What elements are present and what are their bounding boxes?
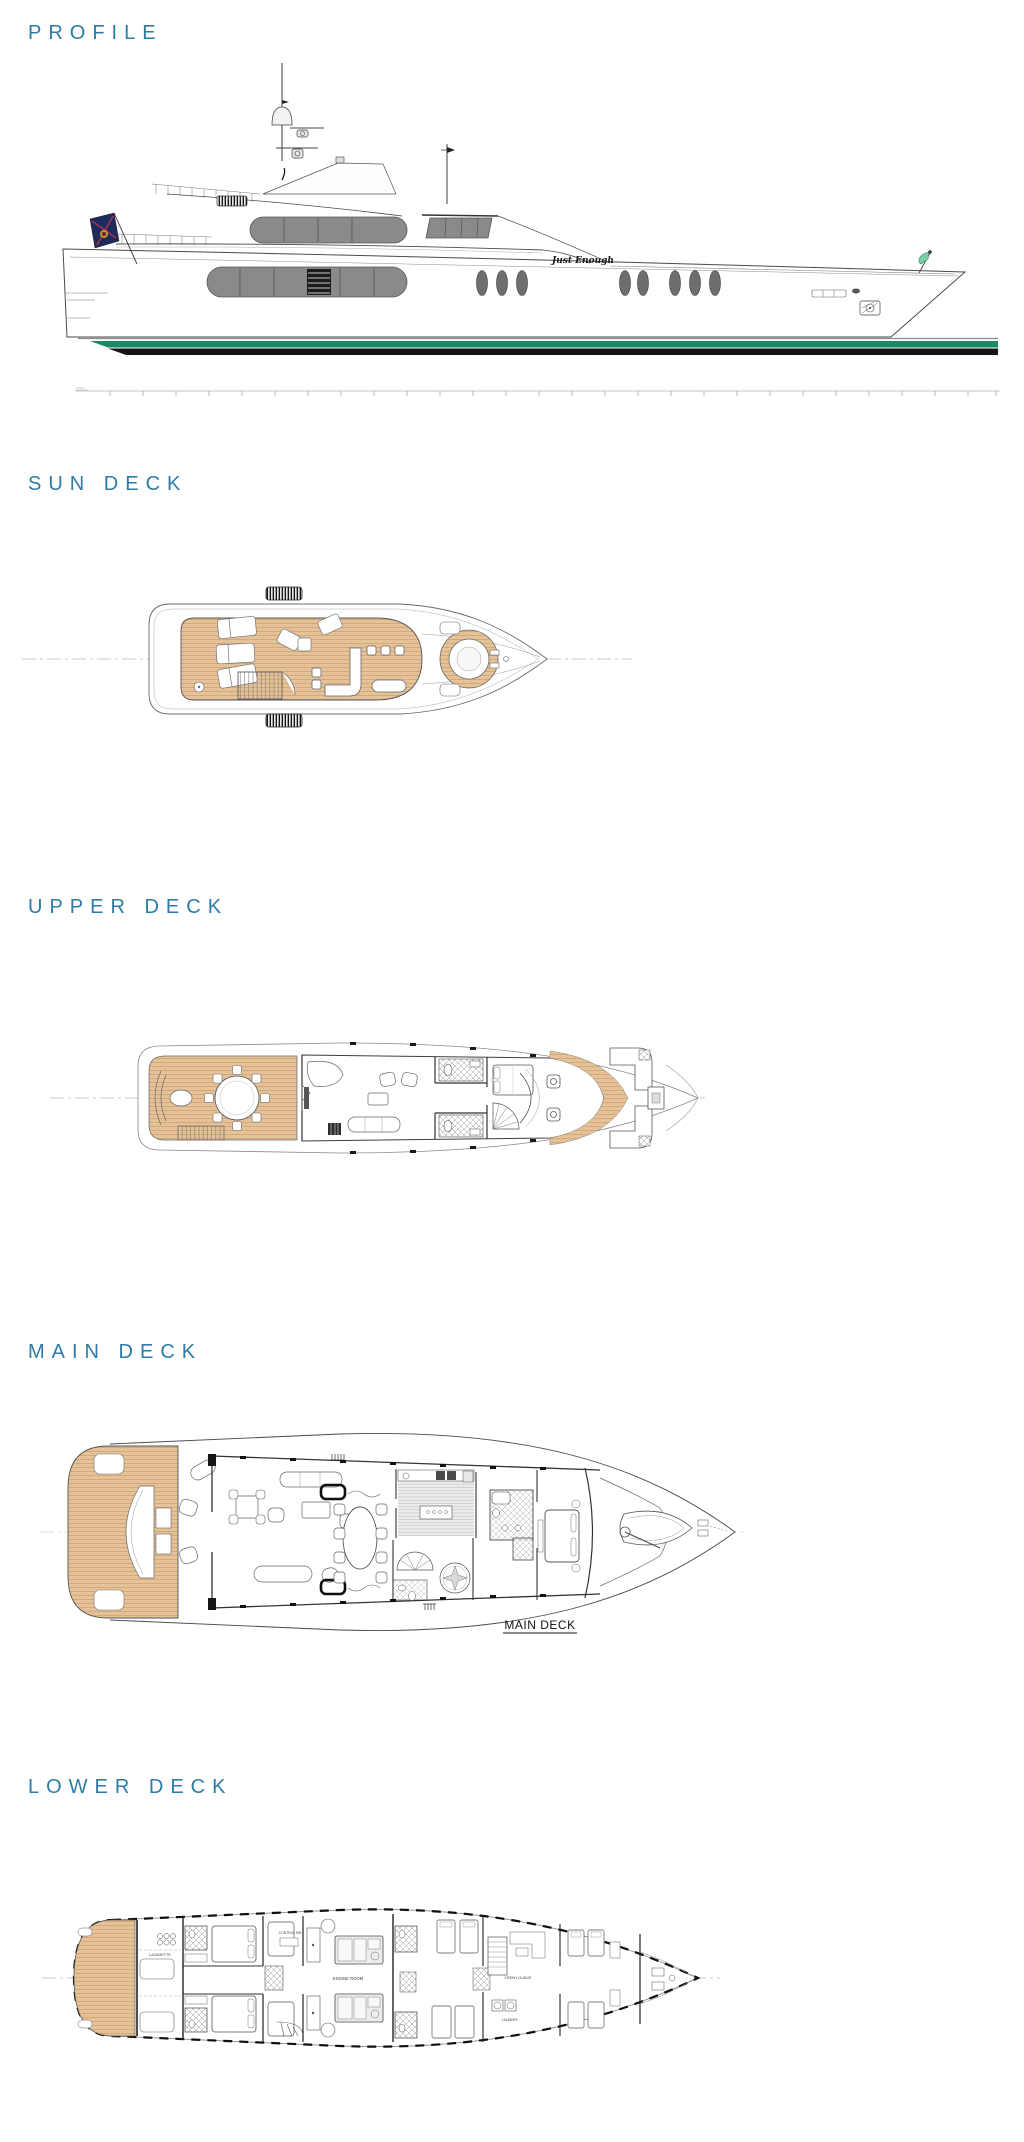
boot-stripe-green: [90, 341, 998, 348]
yacht-name-label: Just Enough: [550, 256, 614, 266]
game-table: [236, 1496, 258, 1518]
foredeck-hatch: [812, 290, 846, 297]
main-deck-plan: MAIN DECK: [40, 1408, 750, 1648]
crew-lounge-label: CREW LOUNGE: [504, 1976, 532, 1980]
swim-platform: [74, 1920, 137, 2036]
section-heading-upper-deck: UPPER DECK: [28, 896, 228, 919]
skylounge-window-band: [250, 217, 407, 243]
lower-deck-plan: LAZARETTE CONTROL RM: [40, 1862, 730, 2057]
engine-stbd: [335, 1994, 383, 2022]
sofa: [348, 1117, 400, 1132]
compass-platform: [194, 682, 204, 692]
section-heading-profile: PROFILE: [28, 22, 163, 45]
hardtop-grille: [217, 196, 247, 206]
upper-deck-plan: [50, 1015, 710, 1185]
aft-stairs: [178, 1126, 224, 1140]
profile-drawing: Just Enough: [50, 50, 1010, 400]
crew-stairs: [488, 1937, 507, 1975]
engine-room-label: ENGINE ROOM: [333, 1976, 364, 1981]
vent-grille-port: [266, 587, 302, 600]
bow-flag: [919, 250, 932, 273]
antifouling-band: [108, 349, 998, 356]
lazarette-label: LAZARETTE: [149, 1953, 171, 1957]
cabinet: [328, 1123, 341, 1135]
galley: [398, 1470, 474, 1536]
laundry-label: LAUNDRY: [502, 2018, 519, 2022]
captain-cabin: [493, 1065, 533, 1095]
sun-deck-plan: [20, 572, 640, 742]
engine-port: [335, 1936, 383, 1964]
upper-aft-deck: [149, 1056, 297, 1140]
control-room-label: CONTROL RM: [279, 1931, 302, 1935]
section-heading-main-deck: MAIN DECK: [28, 1341, 202, 1364]
hawse-pipe: [852, 289, 860, 294]
section-heading-lower-deck: LOWER DECK: [28, 1776, 232, 1799]
pilothouse-windows: [426, 218, 492, 238]
vent-grille-stbd: [266, 714, 302, 727]
scale-ruler: [75, 388, 1000, 396]
bow-thruster: [860, 301, 880, 315]
tv-cabinet: [304, 1087, 309, 1109]
main-deck-caption: MAIN DECK: [504, 1618, 575, 1632]
radome: [272, 107, 292, 125]
profile-hull: [63, 249, 998, 355]
builder-logo: [282, 168, 285, 180]
section-heading-sun-deck: SUN DECK: [28, 473, 187, 496]
